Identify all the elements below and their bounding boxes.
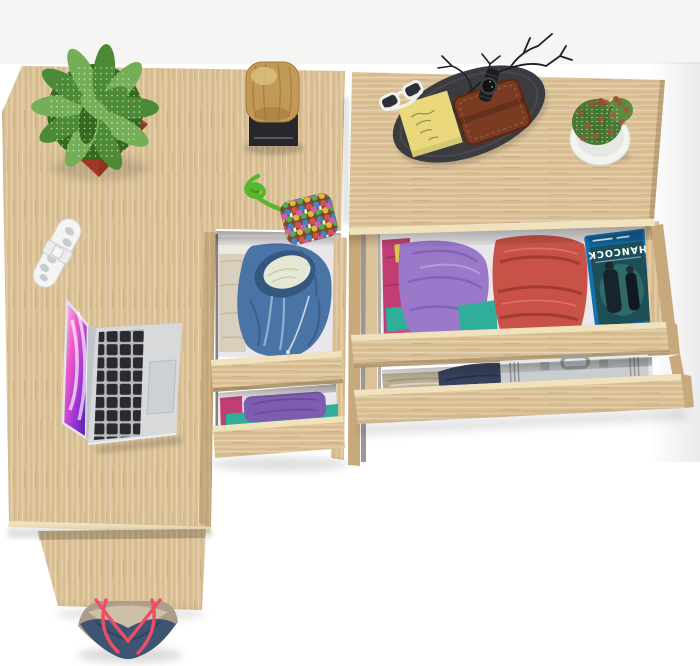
- tote-bag: [78, 600, 182, 663]
- pedestal-left-gap: [216, 234, 219, 458]
- pedestal-floor-shadow: [210, 457, 350, 471]
- wood-log-decor: [244, 62, 304, 155]
- red-clothes-stack: [493, 235, 588, 338]
- desk-dresser-gap-shadow: [343, 98, 349, 223]
- wood-log: [246, 62, 299, 122]
- cactus-plant: [570, 96, 633, 165]
- desk-pedestal: [210, 231, 350, 471]
- scene-illustration: HANCOCK: [0, 0, 700, 666]
- scene: HANCOCK: [0, 0, 700, 666]
- cactus-red-tuft: [597, 98, 605, 106]
- laptop-keyboard: [94, 329, 144, 440]
- laptop-trackpad: [147, 360, 176, 414]
